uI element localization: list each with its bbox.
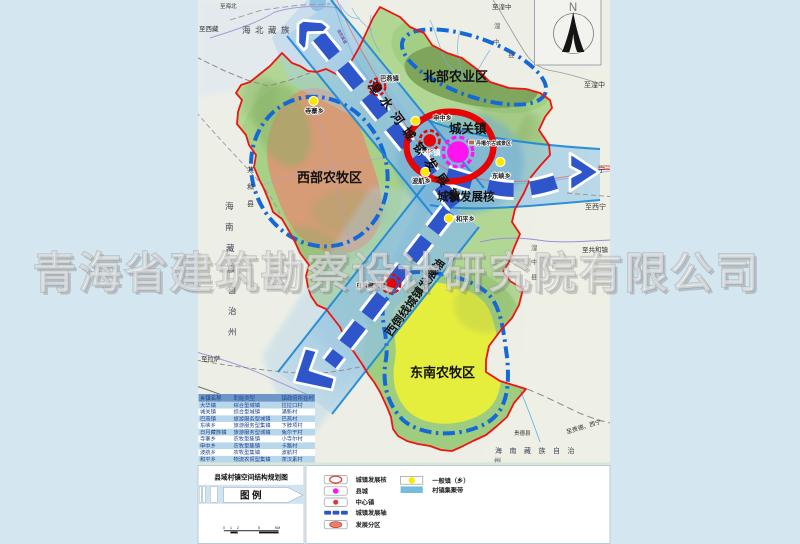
svg-text:至海北: 至海北 (220, 2, 237, 10)
svg-text:大华镇: 大华镇 (200, 401, 217, 409)
svg-text:青海省建筑勘察设计研究院有限公司: 青海省建筑勘察设计研究院有限公司 (33, 250, 761, 298)
svg-text:2: 2 (237, 526, 239, 530)
svg-text:巴燕镇: 巴燕镇 (380, 74, 400, 83)
svg-text:农牧型集镇: 农牧型集镇 (234, 448, 261, 456)
svg-text:巴燕村: 巴燕村 (282, 415, 299, 423)
svg-text:下脖项村: 下脖项村 (282, 421, 304, 429)
svg-text:农牧型集镇: 农牧型集镇 (234, 442, 261, 450)
svg-text:卡路村: 卡路村 (282, 442, 299, 450)
svg-text:城关镇: 城关镇 (449, 121, 487, 136)
svg-text:城关镇: 城关镇 (200, 408, 217, 416)
svg-text:申中乡: 申中乡 (433, 113, 452, 122)
svg-text:村镇集聚带: 村镇集聚带 (432, 486, 464, 494)
svg-text:物流农贸型集镇: 物流农贸型集镇 (234, 455, 272, 463)
svg-text:兔尔干村: 兔尔干村 (282, 428, 304, 436)
svg-text:波航村: 波航村 (282, 448, 299, 456)
svg-text:0: 0 (223, 526, 225, 530)
svg-text:波航乡: 波航乡 (412, 176, 431, 185)
svg-text:小寺尔村: 小寺尔村 (282, 435, 304, 443)
svg-text:州: 州 (228, 327, 237, 337)
svg-text:日月藏族镇: 日月藏族镇 (200, 428, 227, 436)
svg-text:镇政府所在村: 镇政府所在村 (282, 394, 315, 402)
svg-text:贵德县: 贵德县 (514, 429, 531, 437)
svg-text:中: 中 (493, 37, 500, 46)
svg-text:海: 海 (225, 201, 234, 211)
svg-text:农牧型集镇: 农牧型集镇 (234, 435, 261, 443)
svg-text:东峡乡: 东峡乡 (200, 421, 216, 429)
svg-text:茶汉素村: 茶汉素村 (282, 455, 304, 463)
svg-text:丹噶尔古城景区: 丹噶尔古城景区 (475, 140, 511, 147)
svg-text:至西宁: 至西宁 (585, 202, 606, 211)
svg-text:县: 县 (247, 200, 254, 208)
svg-text:涌新村: 涌新村 (282, 408, 299, 416)
svg-text:KM: KM (275, 526, 280, 530)
svg-text:N: N (569, 2, 577, 14)
svg-text:大华镇: 大华镇 (418, 147, 441, 157)
svg-text:东南农牧区: 东南农牧区 (410, 365, 475, 380)
svg-text:寺寨乡: 寺寨乡 (200, 435, 216, 443)
svg-text:职能类型: 职能类型 (234, 394, 256, 402)
svg-text:发展分区: 发展分区 (355, 521, 382, 529)
svg-text:海南藏族自治: 海南藏族自治 (495, 446, 582, 455)
svg-text:和平乡: 和平乡 (456, 214, 475, 223)
svg-text:湟: 湟 (494, 21, 501, 30)
svg-text:治: 治 (228, 306, 237, 316)
svg-text:波航乡: 波航乡 (200, 448, 216, 456)
svg-text:乡镇名称: 乡镇名称 (200, 394, 222, 402)
svg-text:1: 1 (230, 526, 232, 530)
svg-text:一般镇（乡）: 一般镇（乡） (432, 477, 469, 485)
svg-text:申中乡: 申中乡 (200, 442, 216, 450)
svg-text:综合型城镇: 综合型城镇 (234, 408, 261, 416)
svg-text:东峡乡: 东峡乡 (492, 171, 511, 180)
svg-text:旅游服务型集镇: 旅游服务型集镇 (234, 421, 272, 429)
svg-text:至西藏: 至西藏 (199, 24, 219, 33)
svg-text:海北藏族: 海北藏族 (242, 25, 294, 35)
svg-text:南: 南 (225, 222, 234, 232)
svg-text:城镇发展核: 城镇发展核 (356, 476, 388, 484)
svg-text:拉拉口村: 拉拉口村 (282, 401, 304, 409)
svg-text:图例: 图例 (240, 490, 264, 502)
svg-text:西部农牧区: 西部农牧区 (297, 170, 362, 185)
svg-text:县城: 县城 (356, 487, 369, 495)
svg-text:旅游服务型城镇: 旅游服务型城镇 (234, 428, 272, 436)
svg-text:至湟中: 至湟中 (584, 80, 605, 89)
svg-text:综合型城镇: 综合型城镇 (234, 401, 261, 409)
svg-text:寺寨乡: 寺寨乡 (305, 106, 324, 115)
svg-text:中心镇: 中心镇 (356, 499, 375, 507)
svg-text:和平乡: 和平乡 (200, 455, 216, 463)
svg-text:县: 县 (508, 51, 515, 59)
svg-text:北部农业区: 北部农业区 (423, 69, 488, 84)
svg-text:县域村镇空间结构规划图: 县域村镇空间结构规划图 (214, 473, 288, 482)
svg-text:旅游服务型城镇: 旅游服务型城镇 (234, 415, 272, 423)
svg-text:巴燕镇: 巴燕镇 (200, 415, 217, 423)
svg-text:宁: 宁 (598, 165, 605, 174)
svg-text:城镇发展轴: 城镇发展轴 (356, 509, 387, 517)
svg-text:至拉萨: 至拉萨 (201, 354, 221, 363)
svg-text:共: 共 (247, 165, 254, 174)
svg-text:和: 和 (247, 182, 254, 191)
svg-text:5: 5 (258, 526, 260, 530)
svg-text:至湟中: 至湟中 (492, 2, 512, 11)
